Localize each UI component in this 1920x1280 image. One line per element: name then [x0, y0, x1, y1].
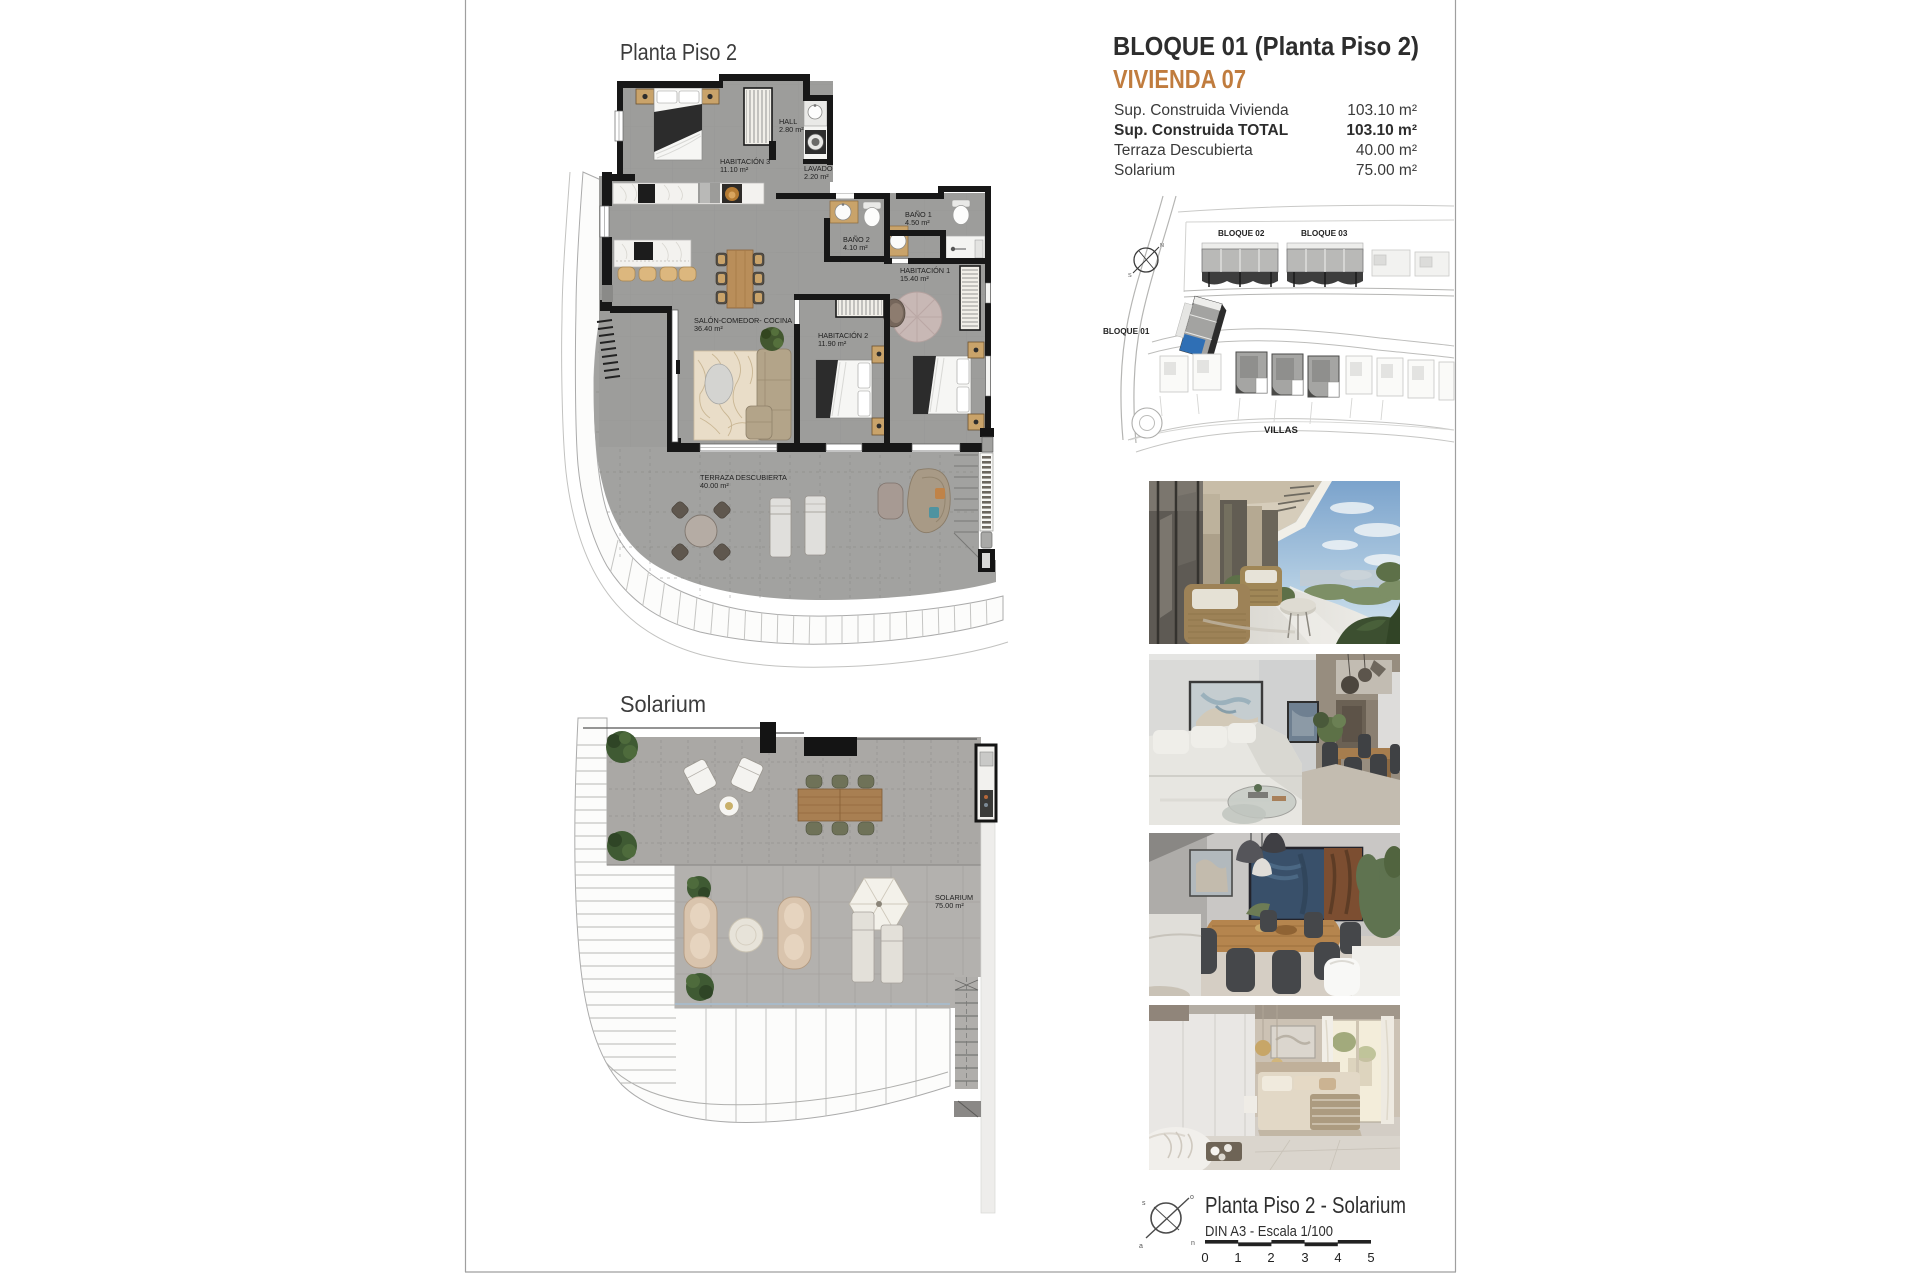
svg-text:15.40 m²: 15.40 m² [900, 274, 929, 283]
svg-text:4: 4 [1334, 1250, 1341, 1265]
svg-text:BLOQUE 01: BLOQUE 01 [1103, 327, 1150, 336]
svg-text:N: N [1160, 243, 1164, 249]
svg-text:Sup. Construida Vivienda: Sup. Construida Vivienda [1114, 102, 1289, 119]
svg-text:Sup. Construida TOTAL: Sup. Construida TOTAL [1114, 122, 1288, 139]
svg-text:S: S [1128, 273, 1132, 279]
svg-text:2: 2 [1267, 1250, 1274, 1265]
svg-text:Terraza Descubierta: Terraza Descubierta [1114, 142, 1253, 159]
svg-text:DIN A3 - Escala 1/100: DIN A3 - Escala 1/100 [1205, 1223, 1333, 1240]
svg-text:40.00 m²: 40.00 m² [700, 481, 729, 490]
svg-text:40.00 m²: 40.00 m² [1356, 142, 1417, 159]
svg-text:Solarium: Solarium [620, 691, 706, 717]
svg-text:BLOQUE 03: BLOQUE 03 [1301, 229, 1348, 238]
svg-text:Planta Piso 2: Planta Piso 2 [620, 39, 737, 65]
svg-text:0: 0 [1201, 1250, 1208, 1265]
svg-text:11.90 m²: 11.90 m² [818, 339, 847, 348]
svg-text:Solarium: Solarium [1114, 162, 1175, 179]
svg-text:103.10 m²: 103.10 m² [1347, 102, 1417, 119]
svg-text:3: 3 [1301, 1250, 1308, 1265]
svg-text:o: o [1190, 1194, 1194, 1201]
svg-text:Planta Piso 2 - Solarium: Planta Piso 2 - Solarium [1205, 1192, 1406, 1218]
svg-text:2.20 m²: 2.20 m² [804, 172, 829, 181]
svg-text:5: 5 [1367, 1250, 1374, 1265]
svg-text:11.10 m²: 11.10 m² [720, 165, 749, 174]
svg-text:36.40 m²: 36.40 m² [694, 324, 723, 333]
svg-text:103.10 m²: 103.10 m² [1346, 122, 1417, 139]
svg-text:2.80 m²: 2.80 m² [779, 125, 804, 134]
svg-text:75.00 m²: 75.00 m² [935, 901, 964, 910]
svg-text:75.00 m²: 75.00 m² [1356, 162, 1417, 179]
svg-text:VILLAS: VILLAS [1264, 425, 1298, 436]
svg-text:BLOQUE 01 (Planta Piso 2): BLOQUE 01 (Planta Piso 2) [1113, 31, 1419, 61]
svg-text:4.10 m²: 4.10 m² [843, 243, 868, 252]
svg-text:VIVIENDA 07: VIVIENDA 07 [1113, 64, 1246, 94]
svg-text:1: 1 [1234, 1250, 1241, 1265]
svg-text:n: n [1191, 1240, 1195, 1247]
svg-text:a: a [1139, 1243, 1143, 1250]
svg-text:BLOQUE 02: BLOQUE 02 [1218, 229, 1265, 238]
svg-text:4.50 m²: 4.50 m² [905, 218, 930, 227]
svg-text:s: s [1142, 1200, 1146, 1207]
